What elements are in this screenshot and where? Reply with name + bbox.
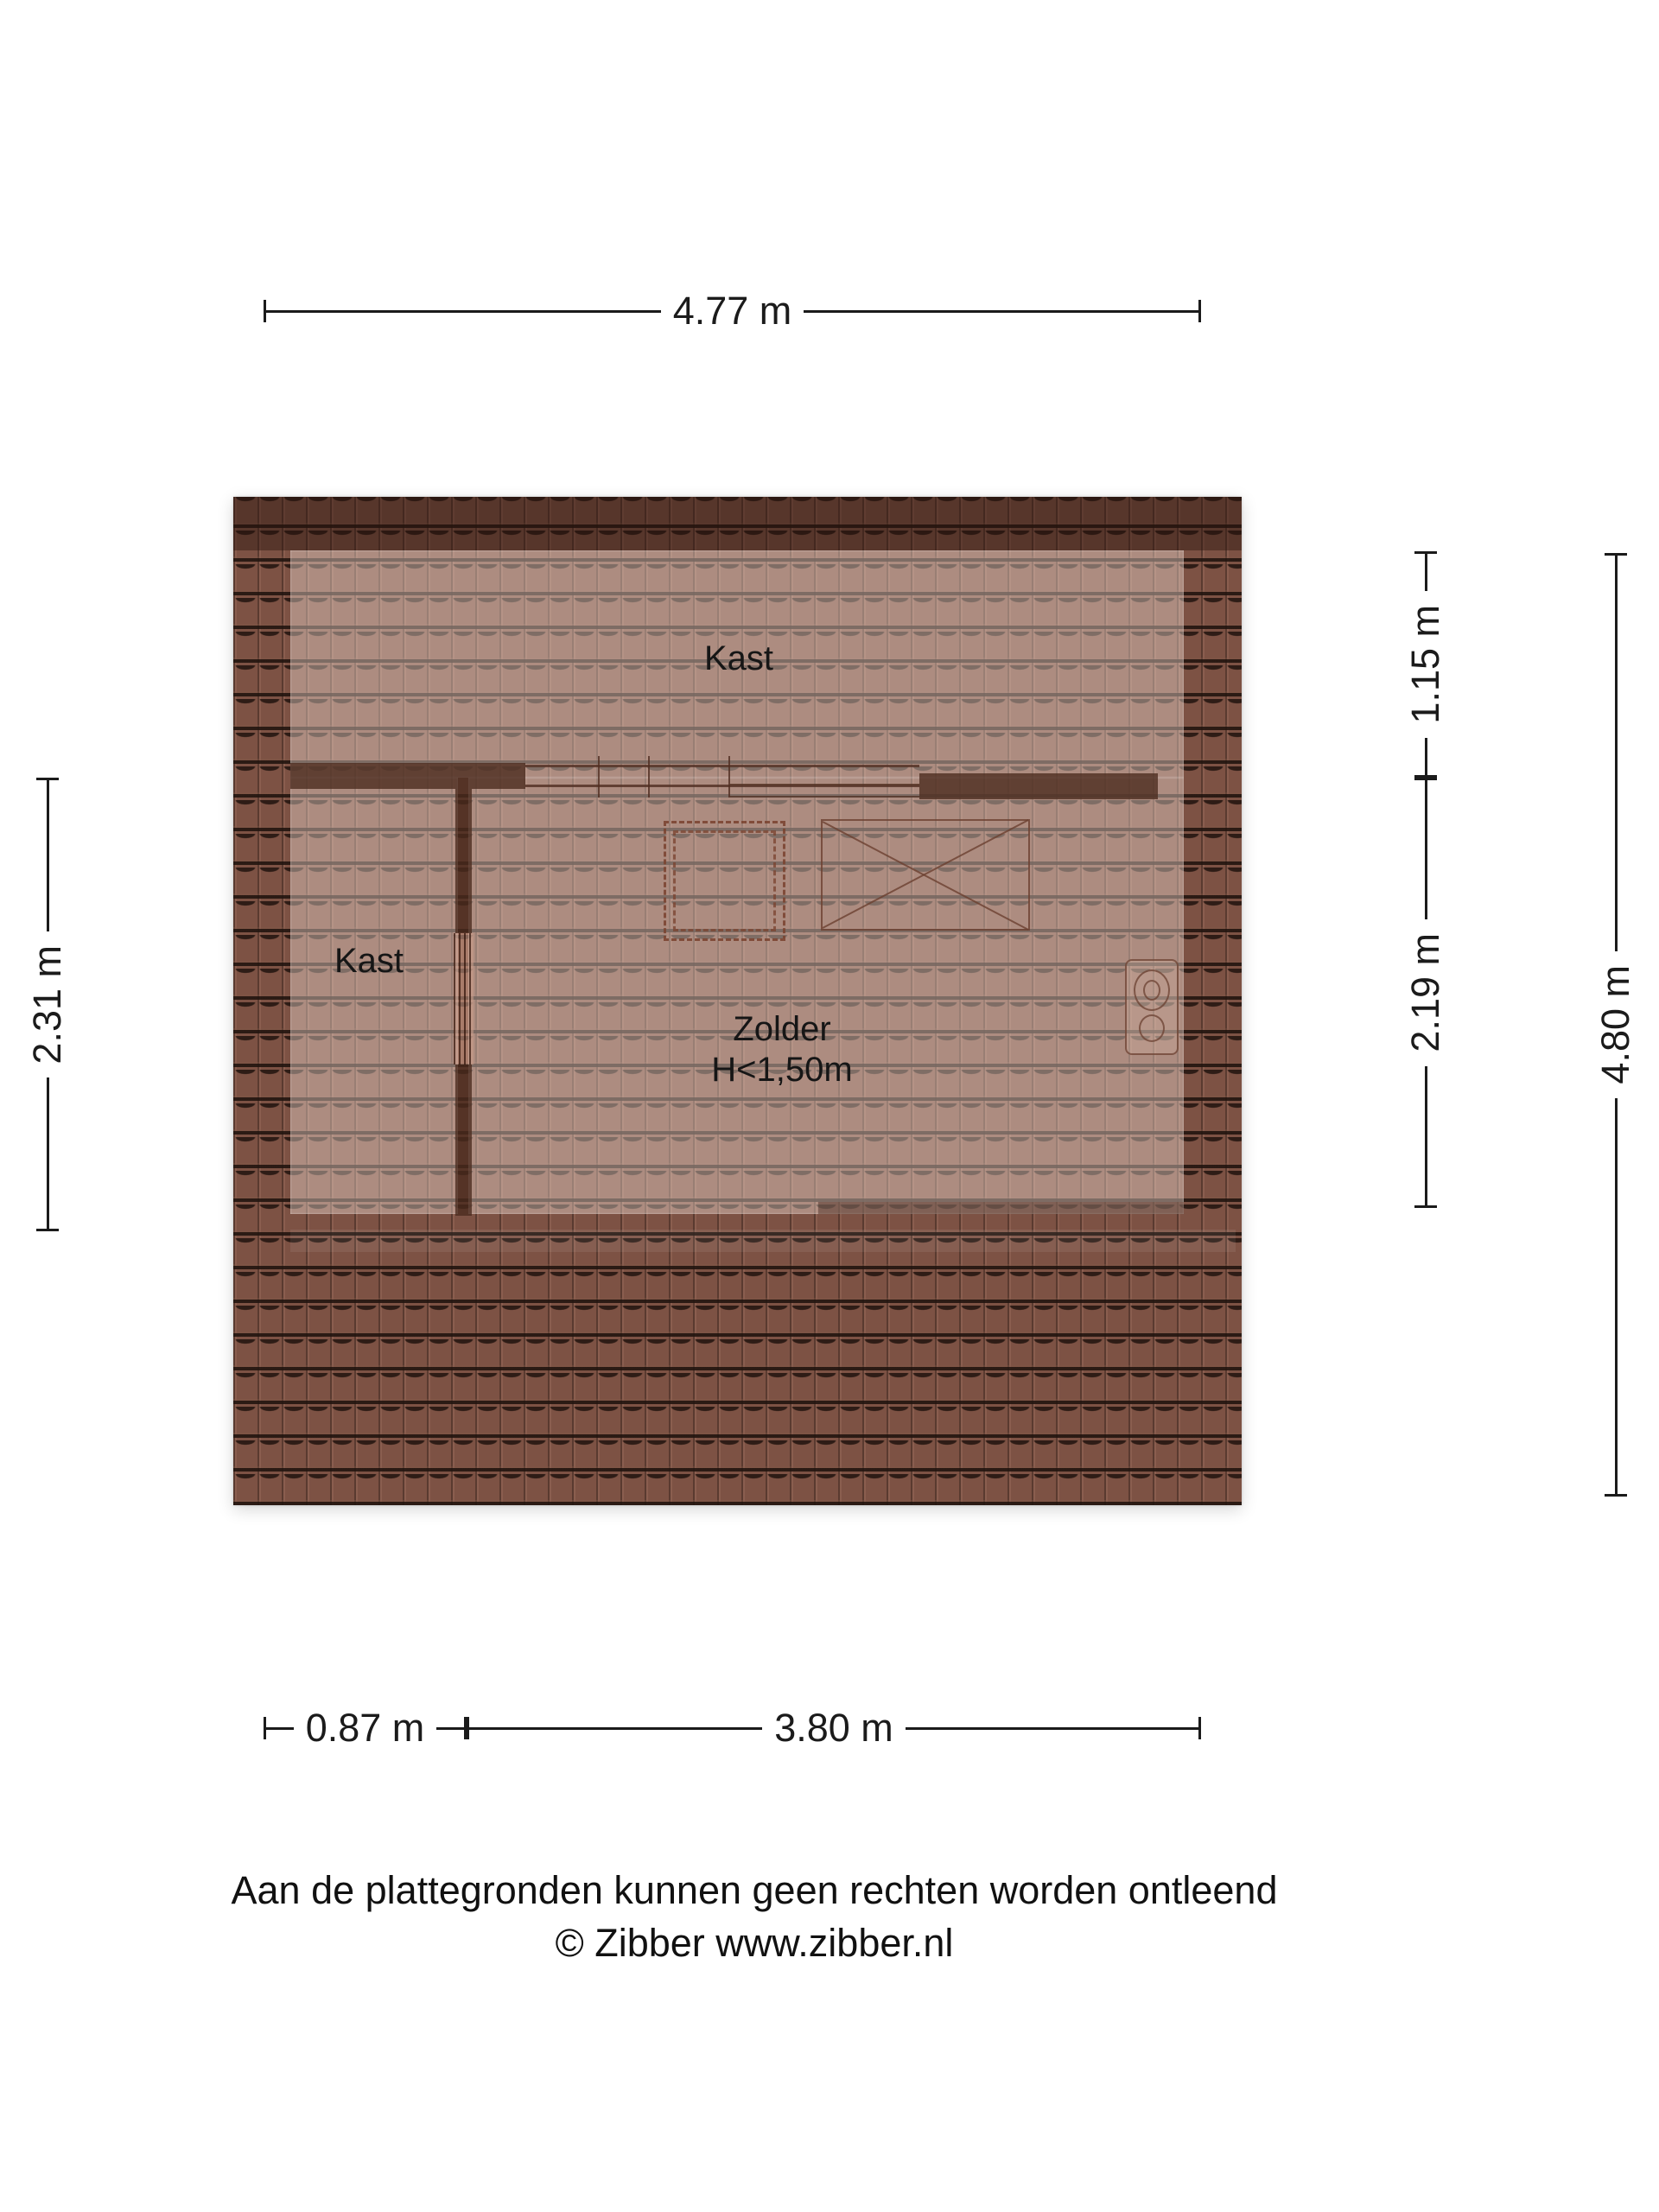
dimension-line (1615, 1098, 1618, 1494)
disclaimer-text: Aan de plattegronden kunnen geen rechten… (0, 1865, 1509, 1917)
wall-horizontal-right (919, 773, 1158, 799)
dimension-label: 2.31 m (25, 931, 70, 1078)
dimension-left: 2.31 m (26, 778, 69, 1231)
dimension-tick (1605, 1494, 1627, 1497)
zolder-height-note: H<1,50m (605, 1050, 959, 1090)
room-kast-left (290, 778, 458, 1214)
room-label-kast-top: Kast (657, 639, 821, 678)
wall-vertical-left-top (455, 789, 472, 933)
dimension-label: 4.80 m (1593, 951, 1638, 1098)
dimension-line (266, 310, 661, 313)
dimension-line (266, 1727, 294, 1730)
roof-window-icon (821, 819, 1030, 931)
dimension-label: 2.19 m (1403, 919, 1448, 1066)
wall-tick (648, 756, 650, 798)
low-wall-double-line-2 (730, 784, 919, 798)
wall-vertical-left-hatch (454, 933, 474, 1065)
dimension-label: 1.15 m (1403, 591, 1448, 738)
dimension-bottom-right: 3.80 m (467, 1704, 1201, 1752)
dimension-label: 0.87 m (294, 1706, 437, 1751)
zolder-name: Zolder (605, 1009, 959, 1050)
dimension-line (1425, 780, 1427, 919)
stair-opening-inner (673, 830, 776, 931)
room-label-zolder: Zolder H<1,50m (605, 1009, 959, 1090)
room-step-edge (818, 1202, 1184, 1214)
stair-opening-icon (664, 821, 785, 941)
dimension-right-outer: 4.80 m (1594, 553, 1637, 1497)
dimension-line (436, 1727, 464, 1730)
dimension-line (1425, 738, 1427, 775)
dimension-line (47, 780, 49, 931)
mechanical-unit-dot (1143, 980, 1160, 1001)
wall-tick (728, 756, 730, 798)
credit-text: © Zibber www.zibber.nl (0, 1917, 1509, 1970)
dimension-label: 4.77 m (661, 289, 804, 334)
wall-vertical-left-bottom (455, 1065, 472, 1216)
dimension-line (906, 1727, 1198, 1730)
dimension-right-inner-top: 1.15 m (1404, 551, 1447, 778)
mechanical-unit-ring-small (1139, 1014, 1165, 1042)
dimension-tick (1198, 300, 1201, 322)
mechanical-unit-icon (1125, 959, 1179, 1055)
dimension-line (1425, 554, 1427, 591)
dimension-top: 4.77 m (264, 287, 1201, 335)
dimension-tick (1198, 1717, 1201, 1739)
wall-tick (598, 756, 600, 798)
roof-slope-band (290, 1230, 1236, 1252)
dimension-right-inner-bottom: 2.19 m (1404, 778, 1447, 1208)
wall-horizontal-left (290, 763, 525, 789)
dimension-bottom-left: 0.87 m (264, 1704, 467, 1752)
dimension-line (47, 1077, 49, 1229)
dimension-line (1615, 556, 1618, 951)
mechanical-unit-ring (1134, 969, 1170, 1011)
footer: Aan de plattegronden kunnen geen rechten… (0, 1865, 1509, 1970)
room-label-kast-left: Kast (287, 942, 451, 981)
dimension-line (469, 1727, 762, 1730)
dimension-tick (1414, 1205, 1437, 1208)
dimension-line (804, 310, 1198, 313)
dimension-tick (36, 1229, 59, 1231)
roof-window-diagonal (823, 821, 1029, 931)
roof-ridge-shade (233, 497, 1242, 550)
floorplan-page: 4.77 m 2.31 m 1.15 m 2.19 m 4.80 m (0, 0, 1659, 2212)
dimension-label: 3.80 m (762, 1706, 906, 1751)
dimension-line (1425, 1066, 1427, 1205)
